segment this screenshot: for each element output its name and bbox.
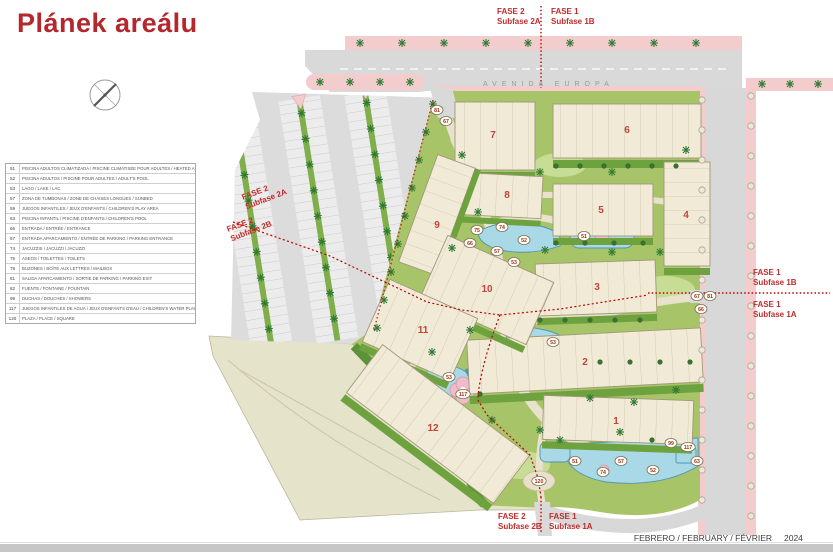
building-number: 1 [613, 416, 619, 427]
legend-number: 75 [6, 254, 20, 263]
building-number: 4 [683, 210, 689, 221]
feature-marker: 99 [665, 438, 677, 447]
legend-desc: JUEGOS INFANTILES / JEUX D'ENFANTS / CHI… [20, 206, 195, 211]
svg-text:81: 81 [707, 294, 713, 300]
svg-text:117: 117 [684, 445, 692, 451]
legend-row: 57ZONA DE TUMBONAS / ZONE DE CHAISES LON… [6, 193, 195, 203]
svg-text:57: 57 [618, 459, 624, 465]
legend-number: 99 [6, 294, 20, 303]
legend-desc: ASEOS / TOILETTES / TOILETS [20, 256, 195, 261]
svg-text:52: 52 [650, 468, 656, 474]
compass-icon [90, 80, 120, 110]
legend-number: 53 [6, 184, 20, 193]
building-number: 6 [624, 125, 630, 136]
phase-label-top-right: FASE 1 [551, 7, 579, 16]
legend-number: 57 [6, 194, 20, 203]
feature-marker: 66 [695, 304, 707, 313]
legend-number: 74 [6, 244, 20, 253]
svg-text:120: 120 [535, 479, 544, 485]
calle-paris-road [706, 88, 746, 535]
phase-label-top-left: FASE 2 [497, 7, 525, 16]
legend-number: 66 [6, 224, 20, 233]
svg-text:74: 74 [499, 225, 505, 231]
svg-text:67: 67 [443, 119, 449, 125]
legend-row: 75ASEOS / TOILETTES / TOILETS [6, 253, 195, 263]
legend-row: 120PLAZA / PLACE / SQUARE [6, 313, 195, 323]
building-number: 11 [418, 325, 429, 336]
feature-marker: 57 [615, 456, 627, 465]
footer-date: FEBRERO / FEBRUARY / FÉVRIER [634, 533, 772, 543]
legend-row: 59JUEGOS INFANTILES / JEUX D'ENFANTS / C… [6, 203, 195, 213]
building-number: 3 [594, 282, 600, 293]
feature-marker: 57 [491, 246, 503, 255]
svg-text:Subfase 1A: Subfase 1A [753, 310, 797, 319]
feature-marker: 67 [691, 291, 703, 300]
phase-label-right-lower: FASE 1 [753, 300, 781, 309]
legend-table: 51PISCINA ADULTOS CLIMATIZADA / PISCINE … [5, 163, 196, 324]
legend-number: 63 [6, 214, 20, 223]
legend-desc: PISCINA ADULTOS CLIMATIZADA / PISCINE CL… [20, 166, 195, 171]
street-avenida-europa: AVENIDA EUROPA [483, 81, 614, 88]
legend-desc: JACUZZIS / JACUZZI / JACUZZI [20, 246, 195, 251]
phase-label-bottom-left: FASE 2 [498, 512, 526, 521]
site-plan-page: 8167757466575251535353117120515774529911… [0, 0, 833, 552]
feature-marker: 53 [547, 337, 559, 346]
svg-text:Subfase 2B: Subfase 2B [498, 522, 542, 531]
feature-marker: 53 [443, 372, 455, 381]
svg-text:Subfase 1A: Subfase 1A [549, 522, 593, 531]
svg-text:67: 67 [694, 294, 700, 300]
legend-row: 63PISCINA INFANTIL / PISCINE D'ENFANTS /… [6, 213, 195, 223]
svg-text:57: 57 [494, 249, 500, 255]
svg-text:51: 51 [572, 459, 578, 465]
feature-marker: 81 [704, 291, 716, 300]
svg-text:99: 99 [668, 441, 674, 447]
svg-text:51: 51 [581, 234, 587, 240]
legend-desc: ENTRADA APARCAMIENTO / ENTRÉE DE PARKING… [20, 236, 195, 241]
legend-desc: FUENTE / FONTAINE / FOUNTAIN [20, 286, 195, 291]
legend-row: 99DUCHAS / DOUCHES / SHOWERS [6, 293, 195, 303]
feature-marker: 52 [518, 235, 530, 244]
legend-desc: PLAZA / PLACE / SQUARE [20, 316, 195, 321]
legend-row: 74JACUZZIS / JACUZZI / JACUZZI [6, 243, 195, 253]
legend-number: 59 [6, 204, 20, 213]
svg-text:117: 117 [459, 392, 467, 398]
footer-bar [0, 544, 833, 552]
phase-label-bottom-right: FASE 1 [549, 512, 577, 521]
feature-marker: 51 [578, 231, 590, 240]
legend-desc: ENTRADA / ENTRÉE / ENTRANCE [20, 226, 195, 231]
svg-text:53: 53 [446, 375, 452, 381]
legend-row: 78BUZONES / BOÎTE AUX LETTRES / MAILBOX [6, 263, 195, 273]
legend-desc: SALIDA APARCAMIENTO / SORTIE DE PARKING … [20, 276, 195, 281]
legend-row: 52PISCINA ADULTOS / PISCINE POUR ADULTES… [6, 173, 195, 183]
feature-marker: 51 [569, 456, 581, 465]
legend-row: 51PISCINA ADULTOS CLIMATIZADA / PISCINE … [6, 164, 195, 173]
feature-marker: 117 [456, 389, 470, 398]
legend-number: 120 [6, 314, 20, 323]
feature-marker: 81 [431, 105, 443, 114]
legend-desc: DUCHAS / DOUCHES / SHOWERS [20, 296, 195, 301]
feature-marker: 53 [508, 257, 520, 266]
feature-marker: 67 [440, 116, 452, 125]
building-number: 5 [598, 205, 604, 216]
legend-desc: LAGO / LAKE / LAC [20, 186, 195, 191]
building-number: 7 [490, 130, 496, 141]
svg-text:66: 66 [467, 241, 473, 247]
footer-year: 2024 [784, 533, 803, 543]
svg-text:66: 66 [698, 307, 704, 313]
building-number: 2 [582, 357, 588, 368]
building-number: 10 [481, 284, 493, 295]
svg-text:81: 81 [434, 108, 440, 114]
legend-desc: BUZONES / BOÎTE AUX LETTRES / MAILBOX [20, 266, 195, 271]
feature-marker: 117 [681, 442, 695, 451]
feature-marker: 52 [647, 465, 659, 474]
legend-row: 117JUEGOS INFANTILES DE AGUA / JEUX D'EN… [6, 303, 195, 313]
feature-marker: 74 [496, 222, 508, 231]
legend-desc: JUEGOS INFANTILES DE AGUA / JEUX D'ENFAN… [20, 306, 195, 311]
svg-text:Subfase 1B: Subfase 1B [551, 17, 595, 26]
legend-row: 81SALIDA APARCAMIENTO / SORTIE DE PARKIN… [6, 273, 195, 283]
building-number: 9 [434, 220, 440, 231]
svg-text:Subfase 2A: Subfase 2A [497, 17, 541, 26]
legend-number: 81 [6, 274, 20, 283]
svg-text:53: 53 [550, 340, 556, 346]
svg-text:75: 75 [474, 228, 480, 234]
legend-row: 66ENTRADA / ENTRÉE / ENTRANCE [6, 223, 195, 233]
svg-text:63: 63 [694, 459, 700, 465]
legend-number: 78 [6, 264, 20, 273]
legend-number: 51 [6, 164, 20, 173]
legend-row: 53LAGO / LAKE / LAC [6, 183, 195, 193]
building-number: 12 [427, 423, 439, 434]
feature-marker: 63 [691, 456, 703, 465]
legend-desc: PISCINA INFANTIL / PISCINE D'ENFANTS / C… [20, 216, 195, 221]
page-title: Plánek areálu [17, 8, 198, 39]
legend-desc: PISCINA ADULTOS / PISCINE POUR ADULTES /… [20, 176, 195, 181]
legend-number: 117 [6, 304, 20, 313]
building-number: 8 [504, 190, 510, 201]
legend-number: 82 [6, 284, 20, 293]
feature-marker: 75 [471, 225, 483, 234]
phase-label-right-upper: FASE 1 [753, 268, 781, 277]
legend-desc: ZONA DE TUMBONAS / ZONE DE CHAISES LONGU… [20, 196, 195, 201]
svg-text:52: 52 [521, 238, 527, 244]
legend-number: 52 [6, 174, 20, 183]
svg-text:53: 53 [511, 260, 517, 266]
svg-text:Subfase 1B: Subfase 1B [753, 278, 797, 287]
feature-marker: 74 [597, 467, 609, 476]
legend-number: 67 [6, 234, 20, 243]
legend-row: 67ENTRADA APARCAMIENTO / ENTRÉE DE PARKI… [6, 233, 195, 243]
legend-row: 82FUENTE / FONTAINE / FOUNTAIN [6, 283, 195, 293]
svg-text:74: 74 [600, 470, 606, 476]
feature-marker: 66 [464, 238, 476, 247]
feature-marker: 120 [532, 476, 546, 485]
